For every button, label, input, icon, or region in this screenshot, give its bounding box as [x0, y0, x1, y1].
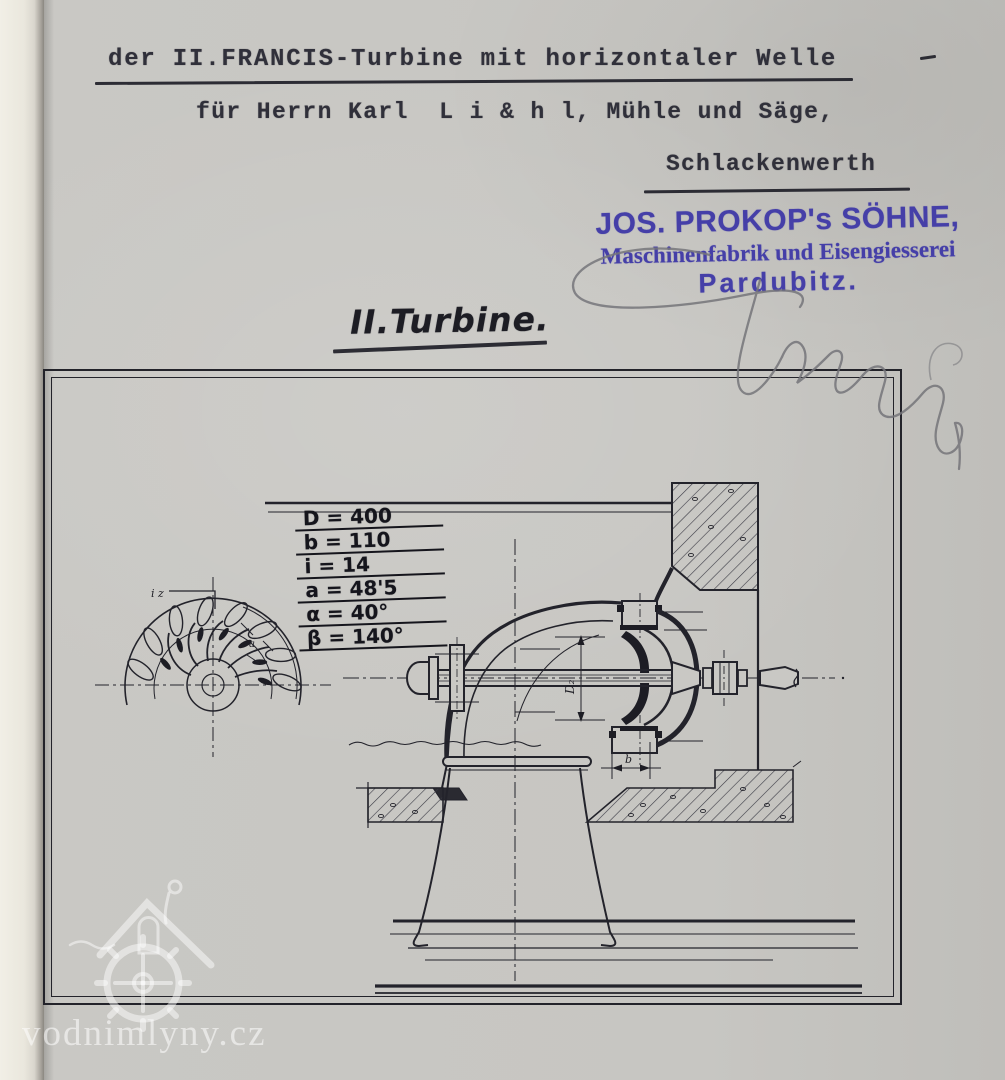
caption-underline [333, 341, 547, 353]
tailwater-lines [375, 921, 862, 993]
vane-label: a [249, 639, 255, 650]
wheel-detail-label: i z [151, 587, 164, 600]
runner-wheel-detail: i z a [95, 577, 331, 757]
runner-width-label: b [625, 753, 632, 766]
customer-line: für Herrn Karl L i & h l, Mühle und Säge… [196, 99, 835, 125]
scanned-document-page: der II.FRANCIS-Turbine mit horizontaler … [0, 0, 1005, 1080]
place-underline [644, 188, 910, 194]
watermark-text: vodnimlyny.cz [22, 1012, 267, 1055]
draft-tube-right-edge [580, 768, 615, 946]
title-line: der II.FRANCIS-Turbine mit horizontaler … [108, 46, 837, 73]
floor-masonry-right [587, 770, 793, 822]
pen-tick-mark [920, 55, 936, 60]
drawing-caption: II.Turbine. [350, 299, 550, 341]
param-row-beta: β = 140° [299, 623, 448, 651]
place-line: Schlackenwerth [666, 151, 876, 177]
casing-bottom-flange [443, 757, 591, 766]
shaft-bearing [713, 662, 737, 694]
handwritten-signature [545, 225, 985, 485]
runner-diameter-label: D₂ [563, 679, 577, 695]
parameter-table: D = 400 b = 110 i = 14 a = 48'5 α = 40° … [295, 503, 448, 652]
title-underline [95, 78, 853, 85]
volute-casing-outline [446, 602, 621, 759]
masonry-block [672, 483, 758, 590]
